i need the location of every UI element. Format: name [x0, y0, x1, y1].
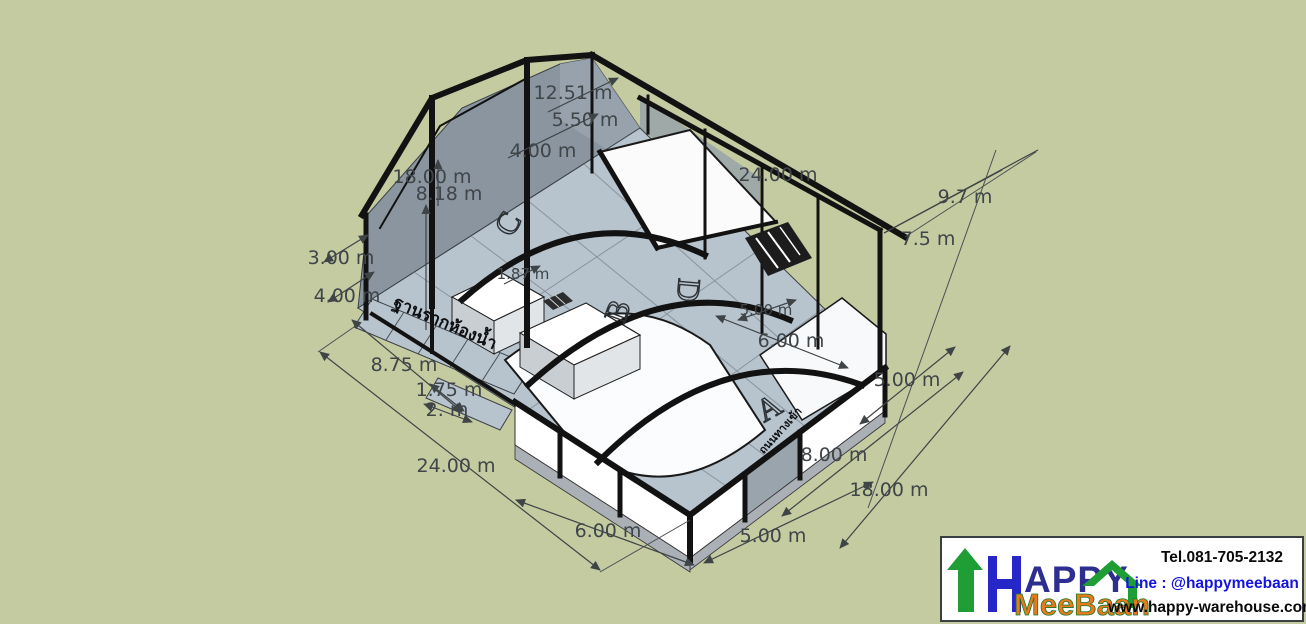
dimension-label: 7.5 m	[901, 228, 956, 250]
grid-letter-d: D	[670, 277, 708, 303]
dimension-label: 3.00 m	[308, 247, 375, 269]
dimension-label: 1.87 m	[497, 265, 550, 283]
dimension-label: 4.00 m	[314, 285, 381, 307]
dimension-label: 24.00 m	[739, 164, 818, 186]
dimension-label: 6.00 m	[575, 520, 642, 542]
dimension-label: 9.7 m	[938, 186, 993, 208]
dimension-label: 8.75 m	[371, 354, 438, 376]
dimension-label: 5.00 m	[740, 301, 793, 319]
logo-web-text: www.happy-warehouse.com	[1107, 599, 1306, 616]
logo-line-text: Line : @happymeebaan	[1125, 575, 1299, 592]
warehouse-plan-screenshot: 12.51 m 5.50 m 4.00 m 18.00 m 8.18 m 24.…	[0, 0, 1306, 624]
dimension-label: 8.00 m	[801, 444, 868, 466]
dimension-label: 2. m	[426, 399, 469, 421]
dimension-label: 5.50 m	[552, 109, 619, 131]
dimension-label: 5.00 m	[874, 369, 941, 391]
dimension-label: 6.00 m	[758, 330, 825, 352]
dimension-label: 5.00 m	[740, 525, 807, 547]
dimension-label: 1.75 m	[416, 379, 483, 401]
dimension-label: 18.00 m	[850, 479, 929, 501]
dimension-label: 8.18 m	[416, 183, 483, 205]
warehouse-3d-drawing: 12.51 m 5.50 m 4.00 m 18.00 m 8.18 m 24.…	[0, 0, 1306, 624]
dimension-label: 12.51 m	[534, 82, 613, 104]
company-logo-block: APPY MeeBaan Tel.081-705-2132 Line : @ha…	[941, 537, 1306, 622]
logo-tel-text: Tel.081-705-2132	[1161, 549, 1283, 566]
dimension-label: 24.00 m	[417, 455, 496, 477]
dimension-label: 4.00 m	[510, 140, 577, 162]
